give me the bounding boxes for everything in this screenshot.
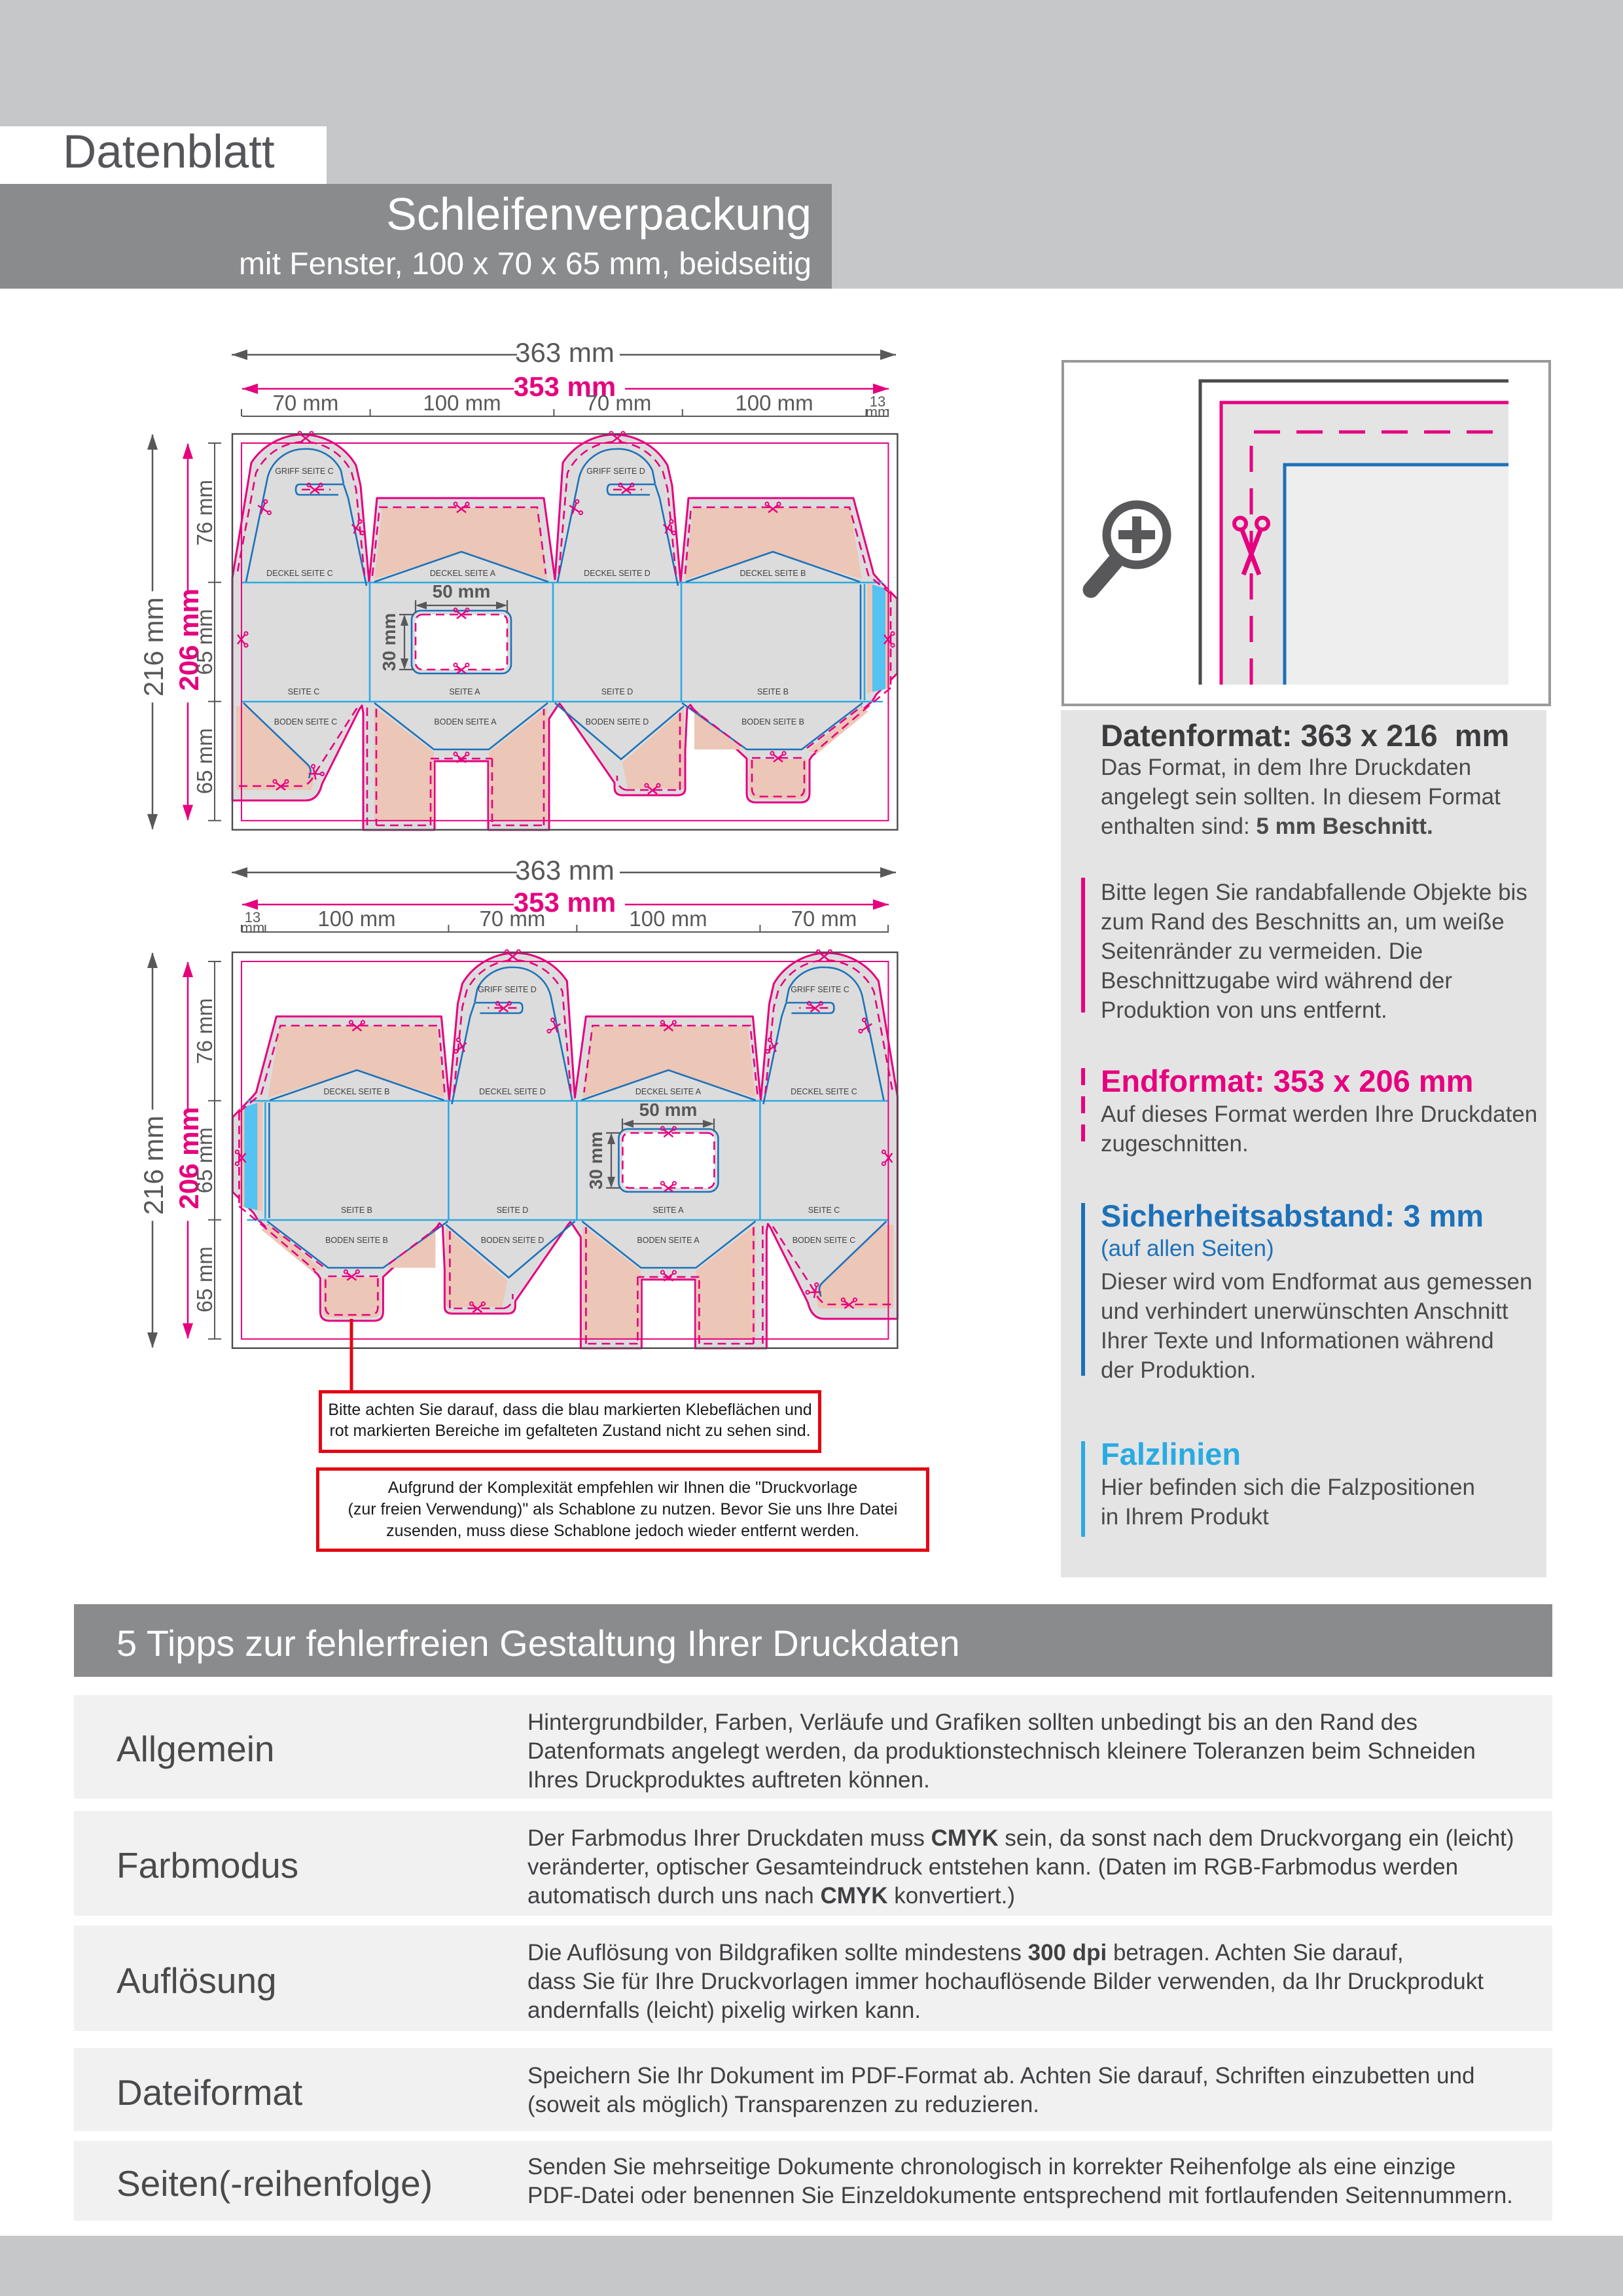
svg-text:65 mm: 65 mm xyxy=(192,1127,217,1193)
svg-text:BODEN SEITE B: BODEN SEITE B xyxy=(325,1236,388,1245)
svg-text:30 mm: 30 mm xyxy=(379,613,399,672)
svg-text:70 mm: 70 mm xyxy=(791,906,857,931)
svg-text:70 mm: 70 mm xyxy=(480,906,546,931)
svg-text:BODEN SEITE A: BODEN SEITE A xyxy=(637,1236,700,1245)
svg-text:65 mm: 65 mm xyxy=(192,609,217,675)
svg-text:216 mm: 216 mm xyxy=(138,598,169,697)
svg-text:DECKEL SEITE D: DECKEL SEITE D xyxy=(584,569,651,578)
svg-text:SEITE D: SEITE D xyxy=(601,687,633,696)
svg-text:DECKEL SEITE C: DECKEL SEITE C xyxy=(791,1087,857,1096)
svg-text:100 mm: 100 mm xyxy=(423,391,501,415)
svg-text:DECKEL SEITE B: DECKEL SEITE B xyxy=(740,569,806,578)
svg-text:mm: mm xyxy=(866,404,890,420)
svg-text:216 mm: 216 mm xyxy=(138,1116,169,1215)
svg-text:DECKEL SEITE D: DECKEL SEITE D xyxy=(479,1087,546,1096)
svg-text:BODEN SEITE B: BODEN SEITE B xyxy=(741,717,804,726)
svg-text:DECKEL SEITE B: DECKEL SEITE B xyxy=(324,1087,390,1096)
svg-text:mm: mm xyxy=(241,920,265,936)
svg-text:SEITE D: SEITE D xyxy=(497,1206,529,1215)
svg-text:GRIFF SEITE D: GRIFF SEITE D xyxy=(586,467,645,476)
svg-text:70 mm: 70 mm xyxy=(586,391,652,415)
svg-text:100 mm: 100 mm xyxy=(317,906,395,931)
svg-text:70 mm: 70 mm xyxy=(273,391,339,415)
svg-text:BODEN SEITE D: BODEN SEITE D xyxy=(481,1236,544,1245)
svg-text:SEITE B: SEITE B xyxy=(341,1206,372,1215)
svg-text:50 mm: 50 mm xyxy=(639,1100,698,1120)
svg-text:GRIFF SEITE D: GRIFF SEITE D xyxy=(478,985,537,994)
svg-text:76 mm: 76 mm xyxy=(192,998,217,1064)
svg-text:DECKEL SEITE A: DECKEL SEITE A xyxy=(635,1087,702,1096)
svg-text:BODEN SEITE A: BODEN SEITE A xyxy=(434,717,497,726)
svg-text:100 mm: 100 mm xyxy=(629,906,707,931)
svg-text:SEITE A: SEITE A xyxy=(652,1206,684,1215)
svg-text:DECKEL SEITE A: DECKEL SEITE A xyxy=(430,569,496,578)
svg-text:50 mm: 50 mm xyxy=(433,581,491,601)
svg-text:GRIFF SEITE C: GRIFF SEITE C xyxy=(791,985,849,994)
svg-text:BODEN SEITE C: BODEN SEITE C xyxy=(793,1236,856,1245)
svg-text:GRIFF SEITE C: GRIFF SEITE C xyxy=(275,467,334,476)
svg-text:SEITE C: SEITE C xyxy=(808,1206,840,1215)
svg-text:DECKEL SEITE C: DECKEL SEITE C xyxy=(266,569,333,578)
svg-text:SEITE B: SEITE B xyxy=(757,687,789,696)
svg-text:100 mm: 100 mm xyxy=(735,391,813,415)
svg-text:363 mm: 363 mm xyxy=(515,337,615,368)
svg-text:65 mm: 65 mm xyxy=(192,728,217,794)
svg-text:65 mm: 65 mm xyxy=(192,1246,217,1312)
svg-text:76 mm: 76 mm xyxy=(192,480,217,546)
svg-text:SEITE A: SEITE A xyxy=(449,687,480,696)
svg-text:BODEN SEITE D: BODEN SEITE D xyxy=(586,717,649,726)
svg-text:SEITE C: SEITE C xyxy=(288,687,320,696)
svg-text:BODEN SEITE C: BODEN SEITE C xyxy=(274,717,338,726)
svg-text:30 mm: 30 mm xyxy=(586,1132,606,1190)
svg-text:363 mm: 363 mm xyxy=(515,855,615,886)
